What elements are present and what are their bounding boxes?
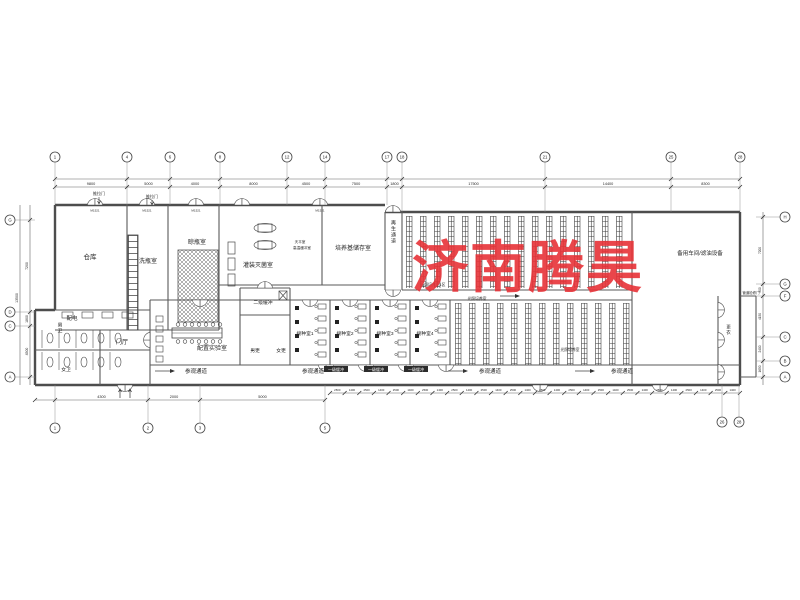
grid-bubble-label: F: [784, 294, 787, 299]
dim-text: 1400: [642, 388, 649, 392]
room-label-bottle-dry: 晾瓶室: [188, 238, 206, 246]
dim-text: 1400: [495, 388, 502, 392]
dim-text: 13500: [15, 293, 19, 303]
grid-bubble-label: 28: [738, 155, 743, 160]
door-symbol: [718, 364, 724, 379]
floor-plan-drawing: 1468121417182125289800500040008000450075…: [0, 0, 800, 600]
culture-racks-lower: [455, 303, 631, 365]
room-label-light-culture-3: 光照培养室: [561, 347, 580, 352]
grid-bubble-label: B: [784, 359, 787, 364]
room-label-warehouse: 仓库: [84, 252, 98, 261]
dim-text: 2500: [568, 388, 575, 392]
dim-text: 2500: [656, 388, 663, 392]
dim-text: 2500: [422, 388, 429, 392]
door-symbol: [438, 365, 453, 371]
dim-text: 2500: [539, 388, 546, 392]
dim-text: 2400: [758, 345, 762, 352]
room-label-change-f: 女更: [276, 347, 286, 354]
dim-text: 4500: [302, 182, 310, 186]
dim-text: 1650: [758, 365, 762, 372]
room-label-prep-lab: 配置实验室: [197, 344, 227, 352]
grid-bubble-label: 18: [400, 155, 405, 160]
buffer-tag-3: 一级缓冲: [408, 366, 424, 372]
door-symbol: [718, 332, 724, 347]
grid-bubble-label: C: [8, 324, 11, 329]
room-label-inoc1: 接种室1: [296, 330, 313, 337]
door-symbol: [385, 290, 400, 296]
dim-text: 2500: [686, 388, 693, 392]
dim-text: 17500: [468, 182, 479, 186]
room-label-medium-storage: 培养基储存室: [335, 244, 371, 252]
grid-bubble-label: 17: [385, 155, 390, 160]
room-label-hall: 门厅: [116, 338, 128, 346]
dim-text: 4500: [25, 348, 29, 356]
dim-text: 2000: [170, 395, 178, 399]
grid-bubble-label: H: [783, 215, 786, 220]
dim-text: 2500: [598, 388, 605, 392]
dim-text: 7200: [758, 247, 762, 254]
note-balance-room: 天平室: [295, 239, 306, 244]
dim-text: 1400: [583, 388, 590, 392]
dim-text: 1800: [25, 315, 29, 323]
door-symbol: [144, 332, 150, 347]
room-label-power: 配电: [66, 314, 78, 322]
grid-bubble-label: 26: [720, 420, 725, 425]
door-code-4: M1521: [315, 209, 325, 213]
door-code-1: M1521: [90, 209, 100, 213]
room-label-toilet-m: 男卫: [57, 322, 62, 334]
dim-text: 2500: [334, 388, 341, 392]
dim-text: 1400: [554, 388, 561, 392]
generated-equipment: [42, 304, 446, 370]
room-label-inoc3: 接种室3: [376, 330, 393, 337]
dim-text: 9800: [87, 182, 95, 186]
grid-bubble-label: 21: [543, 155, 548, 160]
note-sliding-door-1: 推拉门: [93, 190, 105, 196]
dim-text: 2500: [627, 388, 634, 392]
note-pipe-door: 管道检修门: [743, 290, 761, 295]
corridor-label-visitor-2: 参观通道: [302, 367, 325, 375]
dim-text: 1400: [378, 388, 385, 392]
dim-text: 4150: [758, 313, 762, 320]
grid-bubble-label: D: [8, 310, 11, 315]
room-label-regen-corridor: 再生通道: [390, 220, 396, 244]
dim-text: 14400: [603, 182, 614, 186]
dim-text: 1400: [407, 388, 414, 392]
drying-area-hatch: [178, 250, 218, 322]
note-sliding-door-2: 推拉门: [146, 193, 158, 199]
grid-bubble-label: 25: [669, 155, 674, 160]
red-watermark: 济南腾昊: [412, 240, 652, 296]
grid-bubble-label: 14: [323, 155, 328, 160]
dim-text: 1400: [671, 388, 678, 392]
dim-text: 1400: [729, 388, 736, 392]
door-symbol: [385, 206, 400, 212]
dim-text: 1400: [466, 388, 473, 392]
door-symbol: [188, 199, 203, 205]
door-symbol: [718, 302, 724, 317]
dim-text: 1400: [612, 388, 619, 392]
dim-text: 7200: [25, 262, 29, 270]
dim-text: 5000: [144, 182, 152, 186]
room-label-filling: 灌装灭菌室: [243, 261, 273, 269]
dim-text: 7500: [352, 182, 360, 186]
corridor-label-visitor-4: 参观通道: [611, 367, 634, 375]
door-code-2: M1521: [142, 209, 152, 213]
grid-bubble-label: A: [784, 375, 787, 380]
room-label-inoc2: 接种室2: [336, 330, 353, 337]
floor-plan-canvas: 1468121417182125289800500040008000450075…: [0, 0, 800, 600]
dim-text: 4300: [97, 395, 105, 399]
dim-text: 5000: [258, 395, 266, 399]
grid-bubble-label: 12: [285, 155, 290, 160]
dim-text: 2500: [510, 388, 517, 392]
door-code-3: M1521: [191, 209, 201, 213]
room-label-buffer2: 二级缓冲: [253, 299, 272, 306]
dim-text: 1800: [390, 182, 398, 186]
corridor-label-visitor-1: 参观通道: [185, 367, 208, 375]
door-symbol: [234, 199, 249, 205]
room-label-change-corridor: 更衣: [726, 324, 732, 336]
buffer-tag-2: 一级缓冲: [368, 366, 384, 372]
room-label-bottle-wash: 洗瓶室: [139, 257, 157, 265]
note-hot-buffer: 高温缓冲室: [293, 245, 311, 250]
dim-text: 4000: [191, 182, 199, 186]
dim-text: 8000: [249, 182, 257, 186]
dim-text: 1400: [700, 388, 707, 392]
dim-text: 2500: [393, 388, 400, 392]
dim-text: 1400: [349, 388, 356, 392]
grid-bubble-label: 28: [737, 420, 742, 425]
dim-text: 2500: [715, 388, 722, 392]
dim-text: 8300: [701, 182, 709, 186]
door-symbol: [257, 282, 272, 288]
room-label-inoc4: 接种室4: [416, 330, 433, 337]
dim-text: 2500: [451, 388, 458, 392]
dim-text: 2500: [481, 388, 488, 392]
room-label-spare-workshop: 备用车间/滤油设备: [677, 249, 723, 257]
dim-text: 2500: [363, 388, 370, 392]
grid-bubble-label: C: [783, 335, 786, 340]
room-label-toilet-f: 女卫: [61, 366, 71, 373]
room-label-change-m: 男更: [250, 348, 260, 354]
grid-bubble-label: A: [9, 375, 12, 380]
door-symbol: [312, 199, 327, 205]
corridor-label-visitor-3: 参观通道: [479, 367, 502, 375]
dim-text: 1400: [437, 388, 444, 392]
dim-text: 1400: [525, 388, 532, 392]
buffer-tag-1: 一级缓冲: [328, 366, 344, 372]
